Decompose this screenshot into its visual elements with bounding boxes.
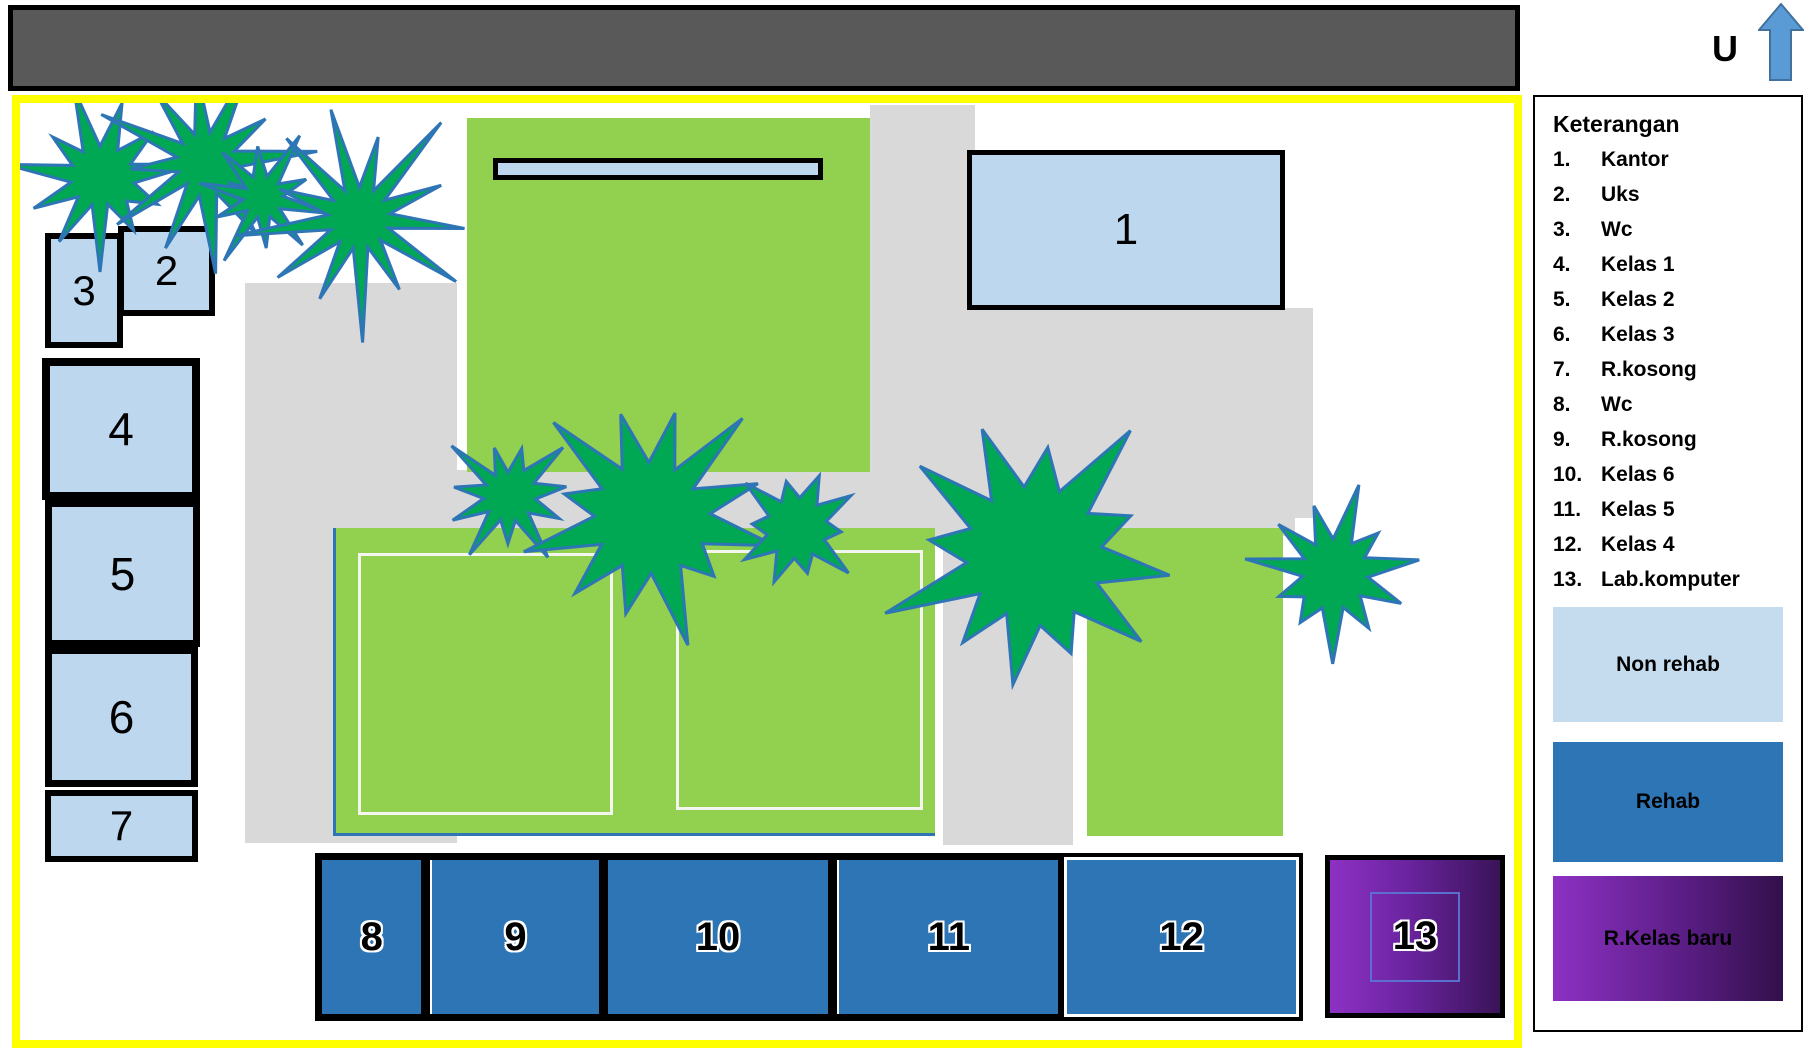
tree-icon — [199, 136, 326, 261]
rehab-building-row: 8 9 10 11 12 — [315, 853, 1303, 1021]
legend-title: Keterangan — [1553, 111, 1801, 138]
court-right — [676, 550, 923, 810]
building-7-r-kosong: 7 — [45, 790, 198, 862]
legend-item: 4.Kelas 1 — [1553, 247, 1801, 282]
building-label: 10 — [696, 915, 741, 960]
building-13-lab-komputer: 13 — [1325, 855, 1505, 1018]
school-site-plan: U 1 2 3 4 5 — [0, 0, 1811, 1057]
path-gray-middle — [943, 515, 1073, 845]
building-label: 9 — [504, 915, 526, 960]
legend-item: 3.Wc — [1553, 212, 1801, 247]
building-label: 12 — [1159, 915, 1204, 960]
building-label: 5 — [110, 551, 136, 597]
building-label: 2 — [155, 250, 178, 292]
field-lower — [333, 528, 935, 836]
building-8-wc: 8 — [322, 860, 421, 1014]
building-3-wc: 3 — [45, 233, 123, 348]
building-6-kelas-3: 6 — [45, 647, 198, 787]
north-label: U — [1700, 28, 1750, 70]
legend-item: 11.Kelas 5 — [1553, 492, 1801, 527]
legend-item: 13.Lab.komputer — [1553, 562, 1801, 597]
building-9-r-kosong: 9 — [430, 860, 598, 1014]
field-right — [1087, 528, 1283, 836]
legend-item: 9.R.kosong — [1553, 422, 1801, 457]
building-10-kelas-6: 10 — [608, 860, 829, 1014]
building-label: 8 — [361, 915, 383, 960]
building-label: 3 — [72, 270, 95, 312]
legend-item: 10.Kelas 6 — [1553, 457, 1801, 492]
map-area: 1 2 3 4 5 6 7 8 9 10 — [12, 95, 1522, 1048]
building-4-kelas-1: 4 — [42, 358, 200, 500]
legend-item: 6.Kelas 3 — [1553, 317, 1801, 352]
building-label: 7 — [110, 805, 133, 847]
legend-panel: Keterangan 1.Kantor 2.Uks 3.Wc 4.Kelas 1… — [1533, 95, 1803, 1032]
north-arrow-icon — [1758, 3, 1804, 81]
legend-swatch-r-kelas-baru: R.Kelas baru — [1553, 876, 1783, 1001]
legend-item: 5.Kelas 2 — [1553, 282, 1801, 317]
building-11-kelas-5: 11 — [837, 860, 1058, 1014]
legend-item: 8.Wc — [1553, 387, 1801, 422]
path-gray-top — [870, 105, 975, 513]
building-label: 13 — [1393, 914, 1438, 959]
building-label: 6 — [109, 694, 135, 740]
building-label: 11 — [928, 915, 970, 960]
building-12-kelas-4: 12 — [1067, 860, 1296, 1014]
building-1-kantor: 1 — [967, 150, 1285, 310]
building-13-inner-frame: 13 — [1370, 892, 1460, 982]
building-5-kelas-2: 5 — [45, 500, 200, 647]
flag-platform — [493, 158, 823, 180]
legend-swatch-non-rehab: Non rehab — [1553, 607, 1783, 722]
road-bar — [8, 5, 1520, 91]
building-label: 1 — [1114, 208, 1138, 252]
legend-item: 2.Uks — [1553, 177, 1801, 212]
legend-swatch-rehab: Rehab — [1553, 742, 1783, 862]
path-gray-band — [457, 470, 1295, 536]
legend-item: 12.Kelas 4 — [1553, 527, 1801, 562]
legend-item: 1.Kantor — [1553, 142, 1801, 177]
building-label: 4 — [108, 406, 134, 452]
building-2-uks: 2 — [118, 226, 215, 316]
court-left — [358, 553, 613, 815]
legend-item: 7.R.kosong — [1553, 352, 1801, 387]
